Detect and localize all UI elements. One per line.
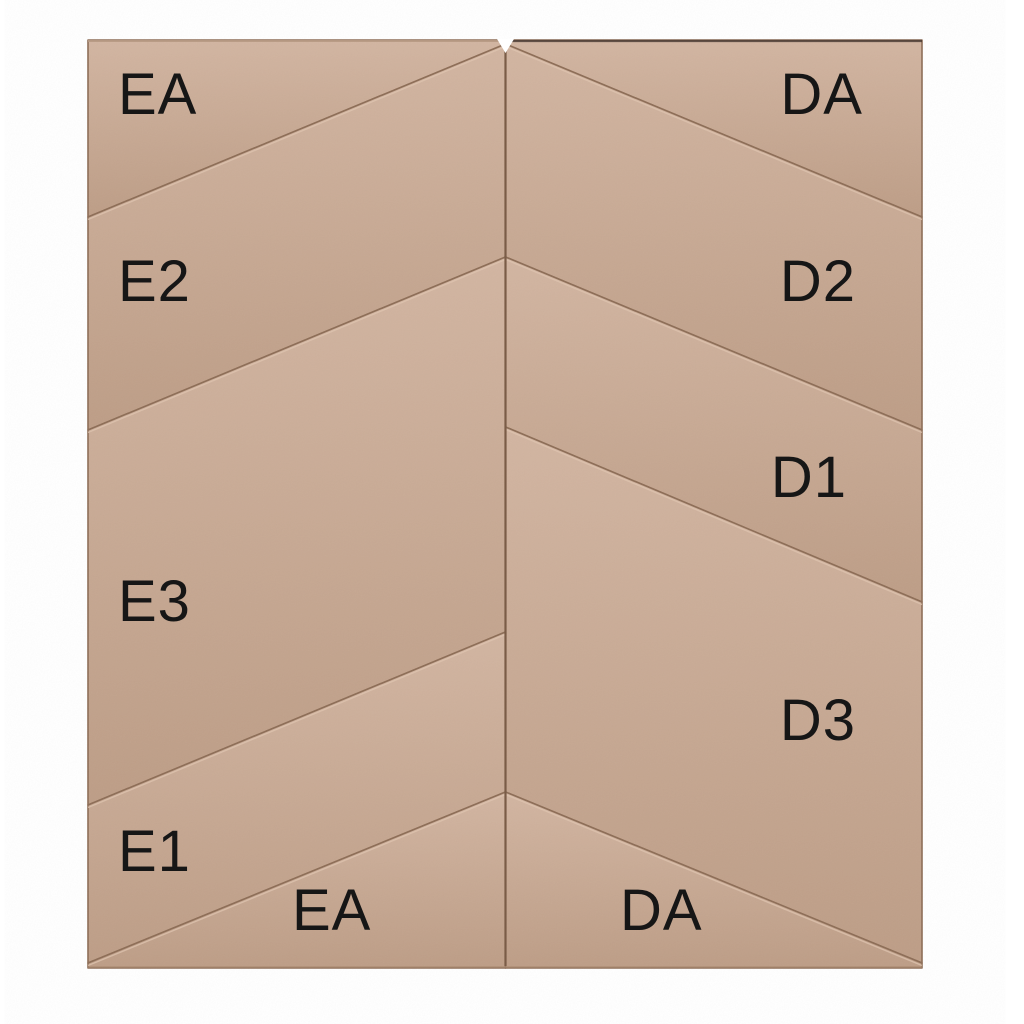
tile-label-EA-top: EA: [118, 62, 197, 127]
tile-label-E1: E1: [118, 819, 191, 884]
tile-label-DA-top: DA: [780, 62, 863, 127]
tile-label-D2: D2: [780, 249, 856, 314]
tile-label-EA-bottom: EA: [292, 878, 371, 943]
panel-svg: EAE2E3E1EADAD2D1D3DA: [0, 0, 1024, 1024]
chevron-tile-diagram: EAE2E3E1EADAD2D1D3DA: [0, 0, 1024, 1024]
tile-label-E3: E3: [118, 569, 191, 634]
tile-label-D3: D3: [780, 688, 856, 753]
tile-label-E2: E2: [118, 249, 191, 314]
tile-label-D1: D1: [771, 445, 847, 510]
tile-label-DA-bottom: DA: [620, 878, 703, 943]
